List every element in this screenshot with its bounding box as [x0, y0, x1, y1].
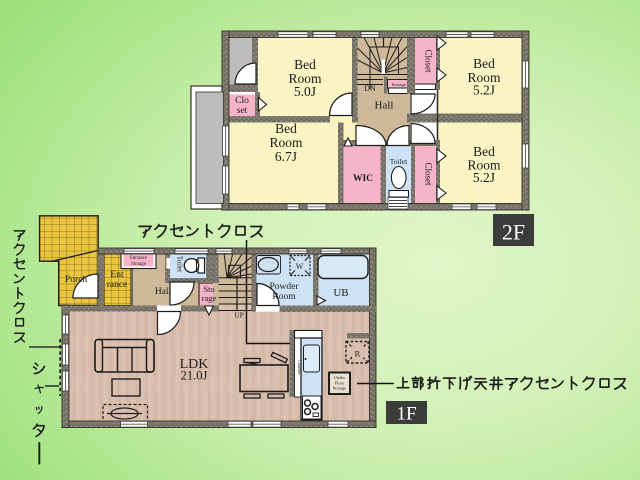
svg-text:Clo: Clo	[235, 96, 249, 106]
svg-text:WIC: WIC	[353, 174, 373, 184]
svg-text:Storage: Storage	[333, 386, 346, 391]
svg-text:W: W	[296, 262, 304, 271]
svg-text:Bed: Bed	[294, 57, 316, 72]
svg-text:5.2J: 5.2J	[473, 83, 495, 98]
svg-text:Closet: Closet	[424, 162, 434, 186]
svg-text:Powder: Powder	[269, 282, 299, 292]
svg-text:set: set	[237, 106, 248, 116]
svg-text:Bed: Bed	[275, 121, 297, 136]
svg-text:Toilet: Toilet	[176, 256, 184, 272]
svg-text:Toilet: Toilet	[390, 157, 408, 166]
svg-text:Storage: Storage	[392, 82, 406, 87]
svg-text:Room: Room	[272, 292, 296, 302]
svg-text:Room: Room	[269, 135, 303, 150]
svg-text:Entrance: Entrance	[130, 256, 147, 261]
svg-text:rance: rance	[107, 280, 128, 290]
svg-text:Storage: Storage	[131, 262, 146, 267]
svg-text:Under: Under	[334, 375, 346, 380]
svg-text:UP: UP	[234, 311, 244, 320]
svg-text:Bed: Bed	[473, 56, 495, 71]
svg-text:R: R	[355, 349, 361, 359]
svg-text:1F: 1F	[396, 404, 416, 425]
svg-text:rage: rage	[202, 293, 217, 303]
svg-text:5.2J: 5.2J	[473, 170, 495, 185]
svg-text:6.7J: 6.7J	[275, 149, 297, 164]
svg-text:Hall: Hall	[155, 287, 172, 297]
svg-text:Porch: Porch	[65, 275, 87, 285]
svg-text:21.0J: 21.0J	[181, 369, 208, 383]
svg-text:Hall: Hall	[375, 100, 394, 112]
svg-text:Ent: Ent	[110, 270, 124, 280]
svg-text:Closet: Closet	[424, 49, 434, 73]
svg-text:UB: UB	[333, 287, 348, 299]
svg-text:2F: 2F	[502, 220, 525, 245]
svg-text:DN: DN	[364, 84, 376, 93]
svg-text:5.0J: 5.0J	[294, 84, 316, 99]
